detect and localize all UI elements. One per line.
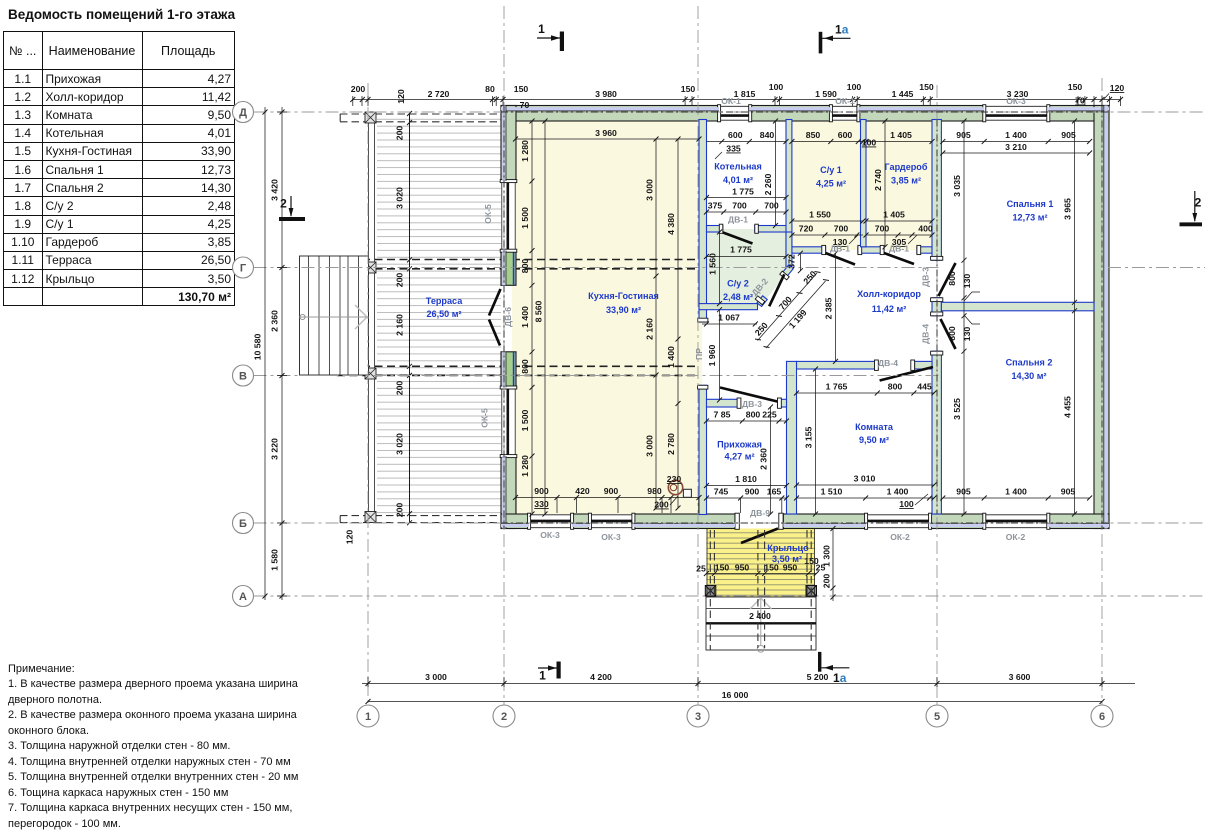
svg-text:900: 900	[534, 486, 549, 496]
svg-text:Котельная: Котельная	[714, 162, 762, 172]
svg-text:3 000: 3 000	[425, 672, 447, 682]
svg-text:200: 200	[395, 381, 405, 396]
svg-text:800: 800	[520, 259, 530, 274]
svg-text:80: 80	[485, 84, 495, 94]
svg-text:1 067: 1 067	[718, 313, 740, 323]
svg-text:3: 3	[695, 711, 701, 723]
svg-text:3 980: 3 980	[595, 89, 617, 99]
svg-text:ОК-3: ОК-3	[1006, 96, 1026, 106]
svg-text:100: 100	[899, 499, 914, 509]
svg-text:1 775: 1 775	[732, 187, 754, 197]
svg-text:445: 445	[917, 382, 932, 392]
svg-text:ОК-3: ОК-3	[601, 532, 621, 542]
svg-text:700: 700	[777, 294, 794, 312]
svg-text:900: 900	[745, 487, 760, 497]
svg-text:3 010: 3 010	[854, 474, 876, 484]
svg-text:Холл-коридор: Холл-коридор	[857, 289, 921, 299]
svg-text:3 220: 3 220	[270, 438, 280, 460]
svg-text:70: 70	[520, 100, 530, 110]
svg-text:С/у 1: С/у 1	[820, 165, 842, 175]
svg-text:1 280: 1 280	[520, 455, 530, 477]
svg-text:12,73 м²: 12,73 м²	[1012, 213, 1047, 223]
svg-text:3 965: 3 965	[1063, 198, 1073, 220]
svg-text:800: 800	[947, 271, 957, 286]
svg-text:ОК-5: ОК-5	[483, 204, 493, 224]
svg-text:ДВ-3: ДВ-3	[921, 267, 931, 287]
svg-text:1 400: 1 400	[1005, 130, 1027, 140]
svg-text:ДВ-4: ДВ-4	[921, 324, 931, 344]
svg-text:2 740: 2 740	[873, 169, 883, 191]
svg-text:5 200: 5 200	[807, 672, 829, 682]
svg-text:16 000: 16 000	[722, 690, 749, 700]
svg-text:3 420: 3 420	[270, 179, 280, 201]
svg-text:3 525: 3 525	[952, 398, 962, 420]
svg-text:950: 950	[783, 563, 798, 573]
svg-text:2 720: 2 720	[428, 89, 450, 99]
svg-text:2 385: 2 385	[824, 297, 834, 319]
svg-text:1 400: 1 400	[520, 306, 530, 328]
svg-text:200: 200	[351, 84, 366, 94]
svg-text:800: 800	[888, 382, 903, 392]
svg-text:3 960: 3 960	[595, 128, 617, 138]
svg-text:1 580: 1 580	[270, 549, 280, 571]
svg-text:1 510: 1 510	[821, 487, 843, 497]
svg-text:2,48 м²: 2,48 м²	[723, 292, 753, 302]
svg-text:1 550: 1 550	[809, 210, 831, 220]
svg-text:ОК-1: ОК-1	[721, 96, 741, 106]
svg-text:2 780: 2 780	[666, 433, 676, 455]
svg-text:600: 600	[838, 130, 853, 140]
svg-text:3,50 м²: 3,50 м²	[772, 554, 802, 564]
svg-text:1 400: 1 400	[887, 487, 909, 497]
svg-text:Г: Г	[240, 263, 247, 275]
svg-text:905: 905	[1061, 487, 1076, 497]
svg-text:150: 150	[514, 84, 529, 94]
svg-text:ПР: ПР	[694, 348, 704, 360]
svg-text:6: 6	[1099, 711, 1105, 723]
svg-text:600: 600	[728, 130, 743, 140]
svg-text:400: 400	[918, 224, 933, 234]
svg-text:3 020: 3 020	[395, 187, 405, 209]
svg-text:120: 120	[396, 89, 406, 104]
svg-text:850: 850	[806, 130, 821, 140]
svg-text:230: 230	[667, 474, 682, 484]
svg-text:840: 840	[760, 130, 775, 140]
svg-text:1 199: 1 199	[787, 307, 809, 330]
svg-text:3 155: 3 155	[804, 426, 814, 448]
svg-text:1 775: 1 775	[730, 245, 752, 255]
svg-text:700: 700	[764, 201, 779, 211]
svg-text:ДВ-1: ДВ-1	[728, 215, 748, 225]
svg-text:3,85 м²: 3,85 м²	[891, 176, 921, 186]
svg-text:120: 120	[1110, 83, 1125, 93]
svg-text:1а: 1а	[833, 671, 847, 685]
svg-text:745: 745	[714, 487, 729, 497]
svg-text:33,90 м²: 33,90 м²	[606, 305, 641, 315]
svg-text:ОК-3: ОК-3	[540, 530, 560, 540]
svg-text:130: 130	[962, 274, 972, 289]
svg-text:150: 150	[681, 84, 696, 94]
svg-text:120: 120	[345, 530, 355, 545]
svg-text:100: 100	[847, 82, 862, 92]
svg-text:700: 700	[875, 224, 890, 234]
svg-text:100: 100	[769, 82, 784, 92]
svg-text:1 400: 1 400	[666, 346, 676, 368]
svg-text:В: В	[239, 371, 247, 383]
svg-text:150: 150	[1068, 82, 1083, 92]
svg-text:200: 200	[822, 574, 832, 589]
svg-text:950: 950	[735, 563, 750, 573]
svg-text:Гардероб: Гардероб	[885, 162, 928, 172]
svg-text:70: 70	[1075, 96, 1085, 106]
svg-text:130: 130	[962, 327, 972, 342]
svg-text:335: 335	[726, 144, 741, 154]
svg-text:1: 1	[539, 669, 546, 683]
svg-text:150: 150	[715, 563, 730, 573]
svg-text:1 405: 1 405	[883, 210, 905, 220]
svg-text:420: 420	[575, 486, 590, 496]
svg-text:200: 200	[395, 273, 405, 288]
svg-text:ОК-2: ОК-2	[890, 532, 910, 542]
svg-text:ДВ-9: ДВ-9	[750, 508, 770, 518]
svg-text:3 210: 3 210	[1005, 142, 1027, 152]
svg-text:800: 800	[746, 410, 761, 420]
svg-text:С/у 2: С/у 2	[727, 279, 749, 289]
svg-text:ДВ-4: ДВ-4	[878, 358, 898, 368]
svg-text:Комната: Комната	[855, 422, 894, 432]
svg-text:1 810: 1 810	[735, 474, 757, 484]
svg-text:4,27 м²: 4,27 м²	[725, 452, 755, 462]
svg-text:2 160: 2 160	[645, 318, 655, 340]
svg-text:Д: Д	[239, 107, 247, 119]
svg-text:1 560: 1 560	[708, 253, 718, 275]
svg-text:2 400: 2 400	[749, 611, 771, 621]
svg-text:ОК-5: ОК-5	[480, 408, 490, 428]
svg-text:ДВ-1: ДВ-1	[889, 244, 909, 254]
svg-text:2 360: 2 360	[759, 448, 769, 470]
svg-text:330: 330	[534, 499, 549, 509]
svg-text:3 020: 3 020	[395, 433, 405, 455]
svg-text:1 445: 1 445	[892, 89, 914, 99]
svg-text:1 300: 1 300	[822, 545, 832, 567]
svg-text:200: 200	[654, 500, 669, 510]
svg-text:1 765: 1 765	[826, 382, 848, 392]
svg-text:200: 200	[395, 503, 405, 518]
svg-text:Спальня 2: Спальня 2	[1006, 358, 1053, 368]
svg-text:700: 700	[732, 201, 747, 211]
svg-text:2: 2	[501, 711, 507, 723]
svg-text:800: 800	[520, 359, 530, 374]
svg-text:2 360: 2 360	[270, 310, 280, 332]
svg-text:3 600: 3 600	[1009, 672, 1031, 682]
svg-text:800: 800	[947, 326, 957, 341]
svg-text:7 85: 7 85	[714, 410, 731, 420]
svg-text:3 035: 3 035	[952, 175, 962, 197]
svg-text:4 455: 4 455	[1063, 396, 1073, 418]
svg-text:1 280: 1 280	[520, 140, 530, 162]
svg-text:372: 372	[787, 254, 797, 269]
svg-text:5: 5	[934, 711, 940, 723]
svg-text:2 260: 2 260	[763, 173, 773, 195]
svg-text:980: 980	[647, 486, 662, 496]
svg-text:ОК-2: ОК-2	[1006, 532, 1026, 542]
svg-text:150: 150	[764, 563, 779, 573]
svg-text:14,30 м²: 14,30 м²	[1011, 371, 1046, 381]
svg-text:1: 1	[365, 711, 371, 723]
svg-text:2: 2	[280, 197, 287, 211]
svg-text:225: 225	[762, 410, 777, 420]
svg-text:8 560: 8 560	[534, 300, 544, 322]
svg-text:3 000: 3 000	[645, 435, 655, 457]
svg-text:1 405: 1 405	[890, 130, 912, 140]
svg-text:100: 100	[862, 138, 877, 148]
svg-text:Спальня 1: Спальня 1	[1007, 199, 1054, 209]
svg-text:720: 720	[799, 224, 814, 234]
svg-text:10 580: 10 580	[253, 334, 263, 361]
svg-text:905: 905	[1061, 130, 1076, 140]
svg-text:1 500: 1 500	[520, 207, 530, 229]
svg-text:700: 700	[834, 224, 849, 234]
svg-text:1а: 1а	[835, 23, 849, 37]
svg-text:Б: Б	[239, 518, 247, 530]
svg-text:Крыльцо: Крыльцо	[767, 543, 809, 553]
svg-text:9,50 м²: 9,50 м²	[859, 435, 889, 445]
svg-text:4,25 м²: 4,25 м²	[816, 179, 846, 189]
svg-text:2: 2	[1195, 196, 1202, 210]
svg-text:3 000: 3 000	[645, 179, 655, 201]
svg-text:250: 250	[753, 320, 770, 338]
svg-text:150: 150	[919, 82, 934, 92]
svg-text:Кухня-Гостиная: Кухня-Гостиная	[588, 291, 659, 301]
svg-text:Терраса: Терраса	[426, 296, 463, 306]
svg-text:200: 200	[395, 126, 405, 141]
svg-text:1 500: 1 500	[520, 409, 530, 431]
svg-text:4 380: 4 380	[666, 213, 676, 235]
svg-text:375: 375	[708, 201, 723, 211]
svg-text:4,01 м²: 4,01 м²	[723, 175, 753, 185]
svg-text:4 200: 4 200	[590, 672, 612, 682]
svg-text:11,42 м²: 11,42 м²	[872, 304, 907, 314]
svg-text:1: 1	[538, 22, 545, 36]
svg-text:А: А	[239, 591, 247, 603]
svg-text:1 590: 1 590	[815, 89, 837, 99]
svg-text:26,50 м²: 26,50 м²	[426, 309, 461, 319]
svg-text:25: 25	[696, 564, 706, 574]
svg-text:ДВ-3: ДВ-3	[742, 399, 762, 409]
svg-text:Прихожая: Прихожая	[717, 440, 762, 450]
svg-text:1 960: 1 960	[707, 344, 717, 366]
svg-text:1 400: 1 400	[1005, 487, 1027, 497]
svg-text:905: 905	[956, 130, 971, 140]
svg-text:900: 900	[604, 486, 619, 496]
svg-text:2 160: 2 160	[395, 314, 405, 336]
svg-text:ДВ-1: ДВ-1	[830, 244, 850, 254]
svg-text:ОК-1: ОК-1	[835, 96, 855, 106]
svg-text:905: 905	[956, 487, 971, 497]
svg-text:165: 165	[767, 487, 782, 497]
svg-text:ДВ-6: ДВ-6	[503, 307, 513, 327]
